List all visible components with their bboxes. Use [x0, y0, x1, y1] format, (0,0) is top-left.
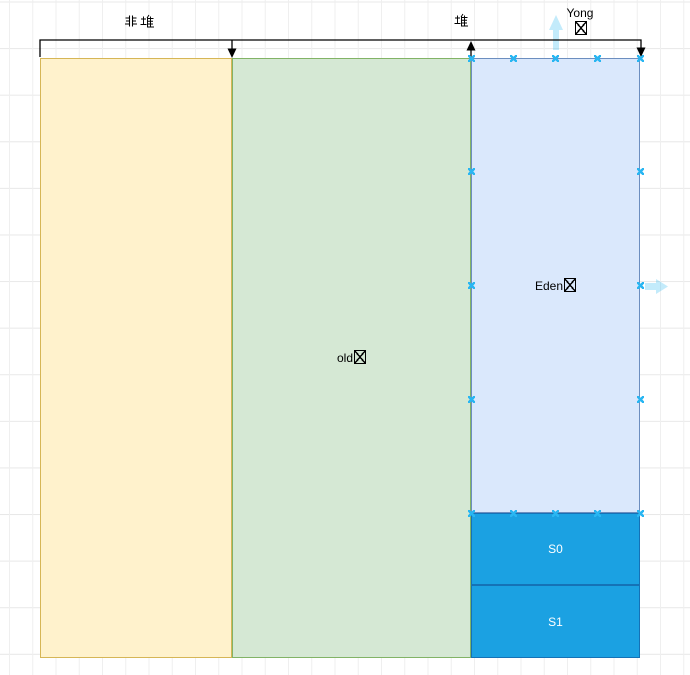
s0-label: S0	[548, 541, 563, 557]
connection-point-icon[interactable]	[468, 282, 475, 289]
connection-point-icon[interactable]	[594, 510, 601, 517]
hanzi-dui-icon	[454, 13, 468, 27]
connection-point-icon[interactable]	[468, 168, 475, 175]
bracket-label-non-heap[interactable]: 非堆	[122, 13, 156, 29]
bracket-label-young[interactable]: Yong	[562, 6, 598, 37]
s0-survivor-rect[interactable]: S0	[471, 513, 640, 585]
connection-point-icon[interactable]	[637, 510, 644, 517]
s1-label: S1	[548, 614, 563, 630]
non-heap-region-rect[interactable]	[40, 58, 232, 658]
missing-glyph-box-icon	[575, 21, 587, 35]
eden-region-rect[interactable]: Eden	[471, 58, 640, 513]
connection-point-icon[interactable]	[468, 510, 475, 517]
connection-point-icon[interactable]	[637, 282, 644, 289]
connection-point-icon[interactable]	[510, 55, 517, 62]
hover-arrow-right-icon[interactable]	[645, 279, 668, 294]
non-heap-arrowhead-down-icon[interactable]	[228, 49, 237, 59]
connection-point-icon[interactable]	[510, 510, 517, 517]
connection-point-icon[interactable]	[637, 55, 644, 62]
hanzi-dui-icon	[140, 14, 154, 28]
connection-point-icon[interactable]	[468, 55, 475, 62]
missing-glyph-box-icon	[564, 278, 576, 292]
bracket-line[interactable]	[40, 40, 641, 57]
hanzi-fei-icon	[124, 14, 138, 28]
bracket-label-heap[interactable]: 堆	[448, 12, 474, 28]
connection-point-icon[interactable]	[552, 510, 559, 517]
connection-point-icon[interactable]	[594, 55, 601, 62]
connection-point-icon[interactable]	[637, 168, 644, 175]
connection-point-icon[interactable]	[468, 396, 475, 403]
eden-region-label: Eden	[535, 278, 576, 294]
old-region-label: old	[337, 350, 366, 366]
s1-survivor-rect[interactable]: S1	[471, 585, 640, 658]
missing-glyph-box-icon	[354, 350, 366, 364]
connection-point-icon[interactable]	[637, 396, 644, 403]
old-gen-region-rect[interactable]: old	[232, 58, 471, 658]
connection-point-icon[interactable]	[552, 55, 559, 62]
heap-arrowhead-up-icon[interactable]	[467, 41, 476, 51]
hover-arrow-up-icon[interactable]	[549, 15, 563, 50]
diagram-canvas[interactable]: old Eden S0 S1 非堆 堆	[0, 0, 690, 675]
